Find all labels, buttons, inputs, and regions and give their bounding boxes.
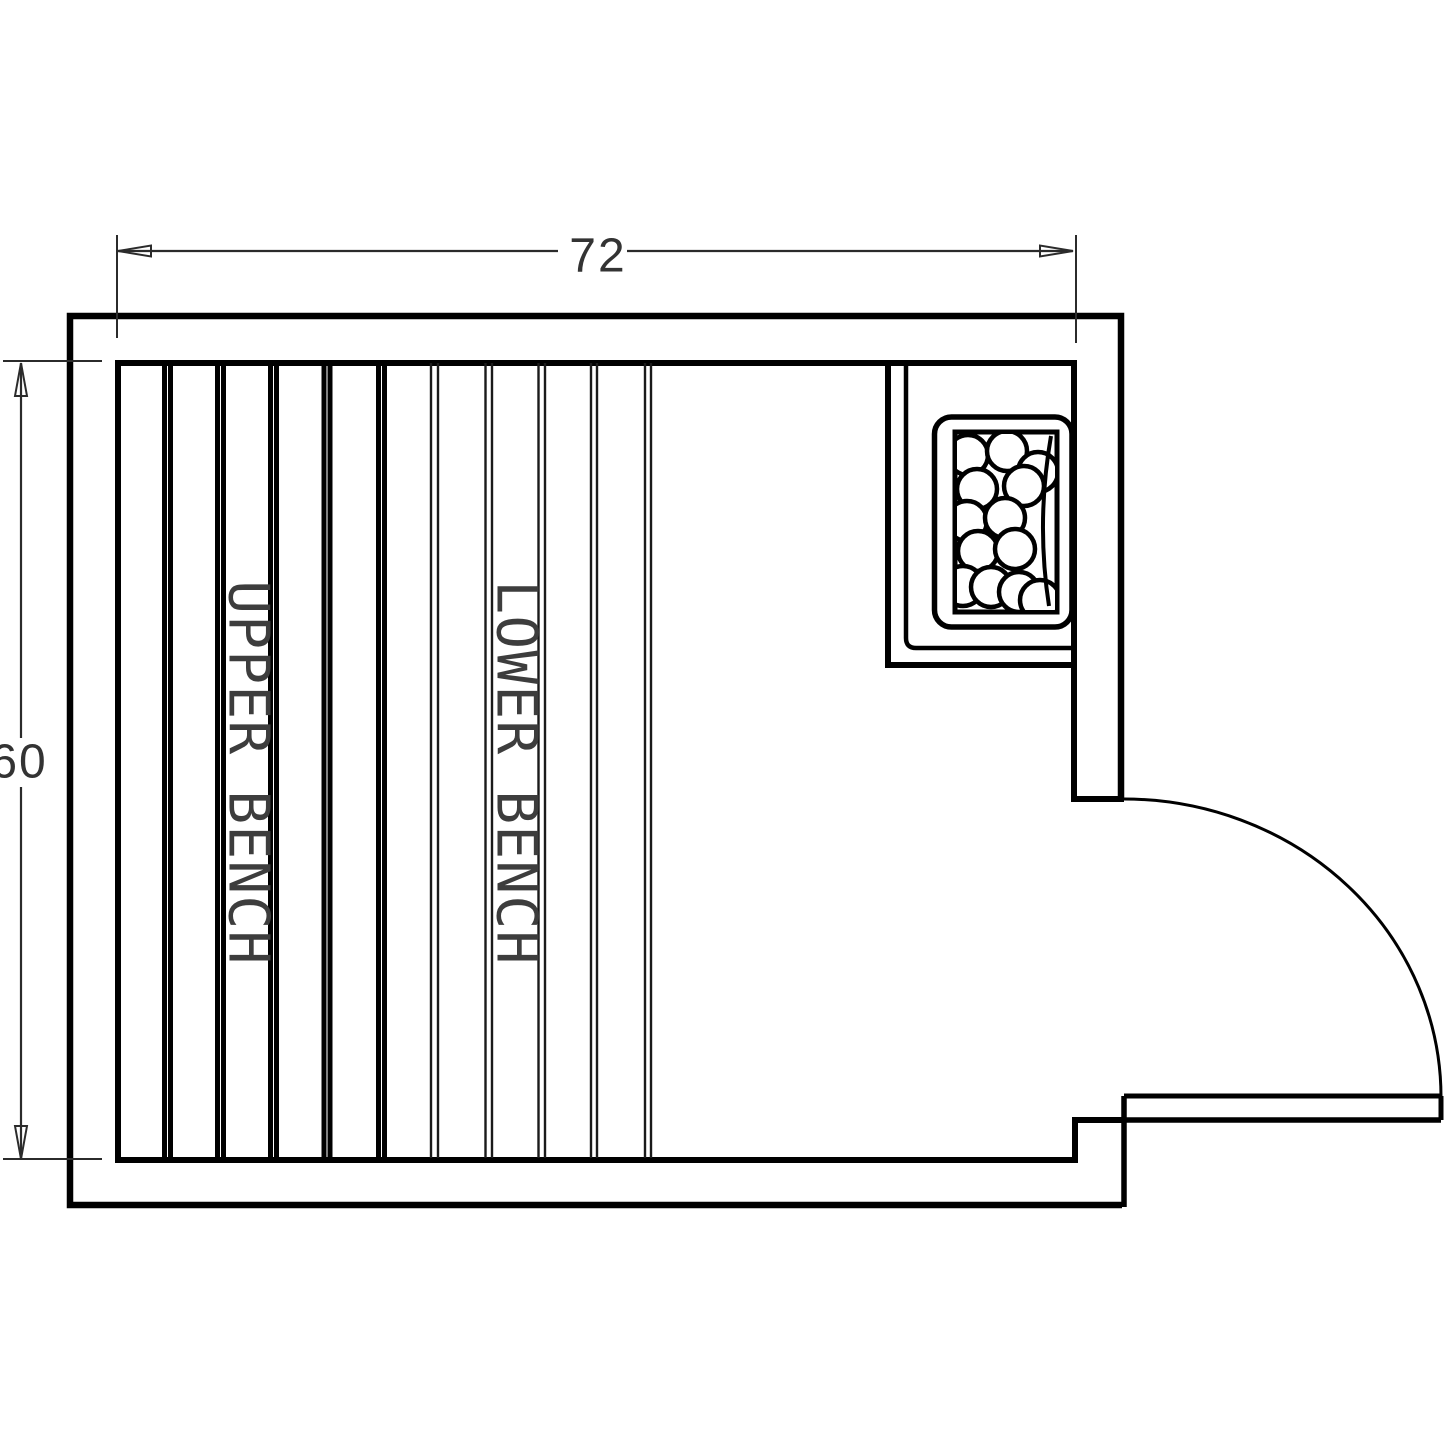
- door: [1075, 799, 1441, 1120]
- width-dimension-value: 72: [569, 230, 626, 283]
- lower-bench: LOWER BENCH: [431, 363, 651, 1158]
- door-swing-arc: [1124, 799, 1441, 1097]
- height-dimension-value: 60: [0, 736, 48, 789]
- upper-bench: UPPER BENCH: [165, 363, 385, 1158]
- rock: [995, 529, 1035, 569]
- upper-bench-label: UPPER BENCH: [216, 580, 281, 965]
- width-dimension: 72: [117, 230, 1076, 344]
- height-dimension: 60: [0, 361, 102, 1159]
- floor-plan-drawing: UPPER BENCH LOWER BENCH: [0, 0, 1445, 1445]
- sauna-floor-plan: UPPER BENCH LOWER BENCH: [0, 0, 1445, 1445]
- lower-bench-label: LOWER BENCH: [484, 580, 549, 965]
- heater-rocks: [943, 431, 1060, 620]
- heater: [935, 417, 1073, 627]
